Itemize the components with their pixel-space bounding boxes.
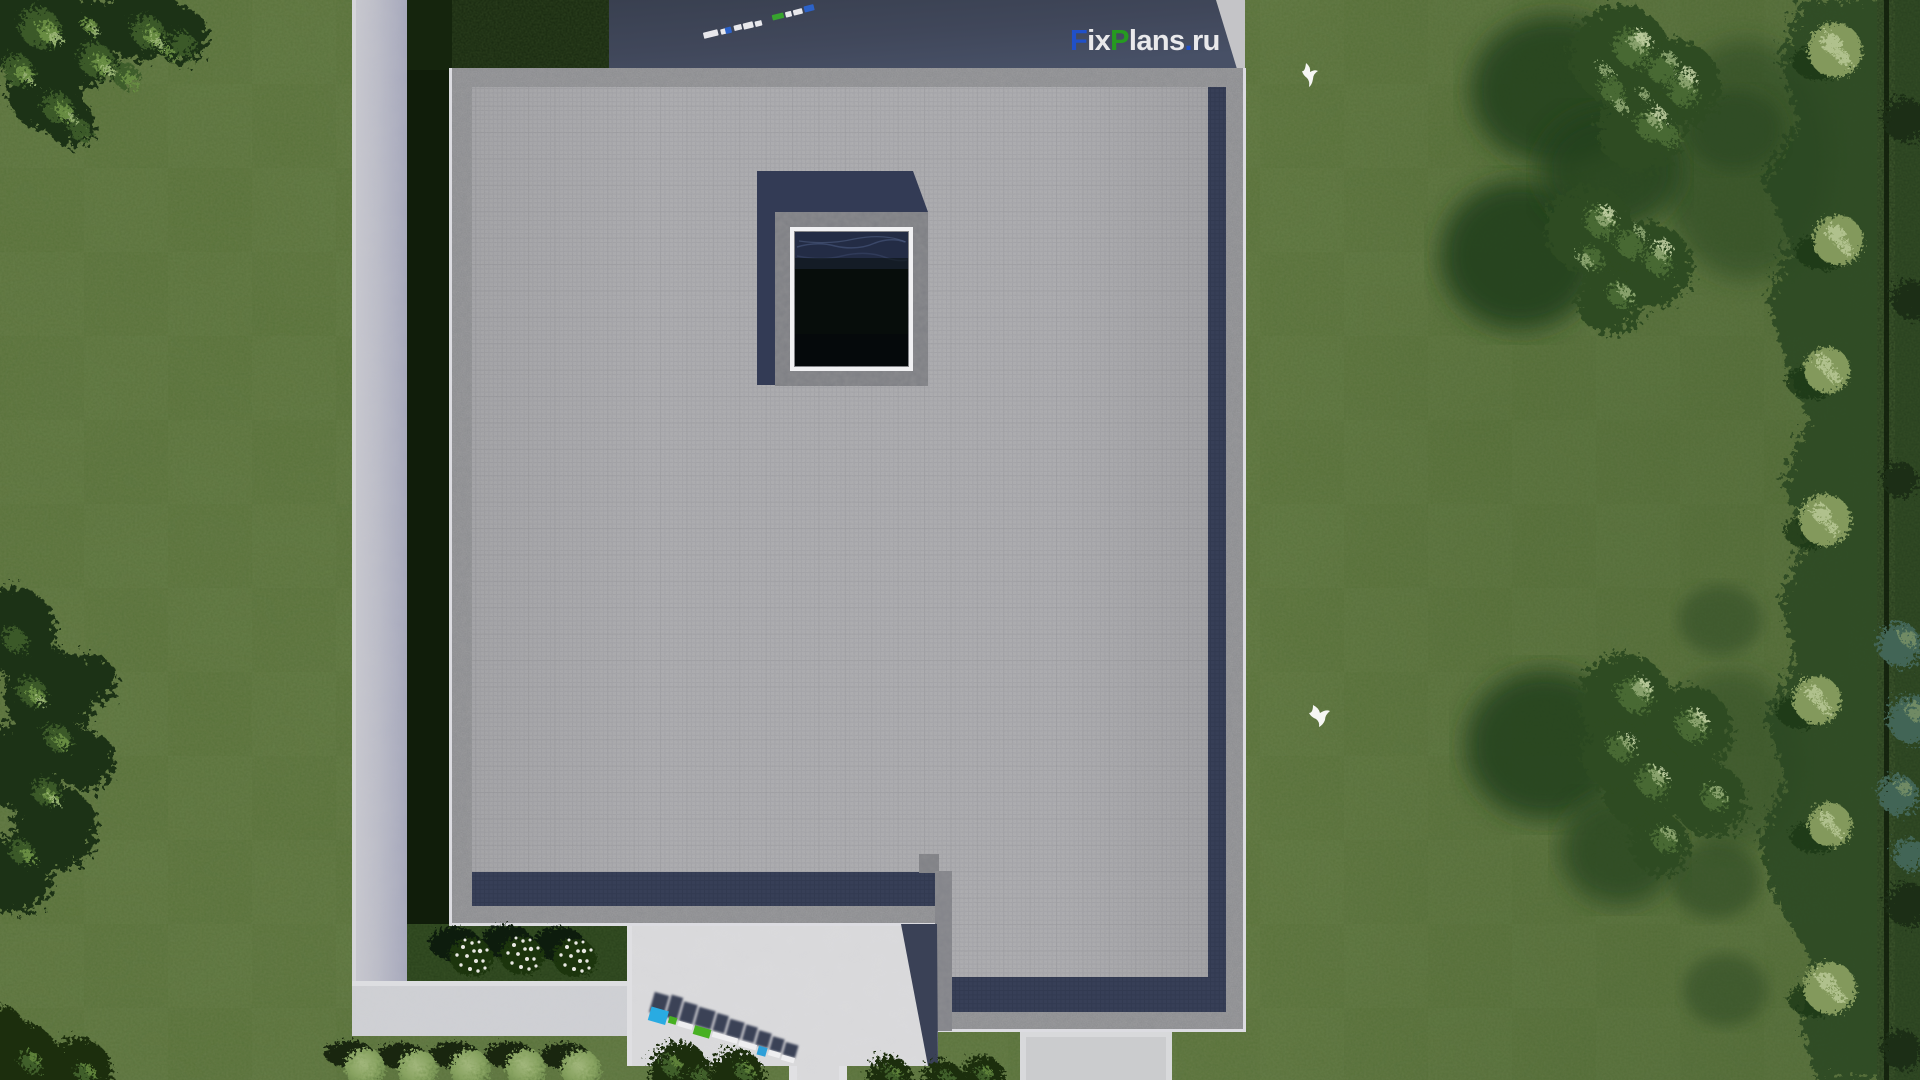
svg-text:FixPlans.ru: FixPlans.ru <box>1070 25 1220 57</box>
